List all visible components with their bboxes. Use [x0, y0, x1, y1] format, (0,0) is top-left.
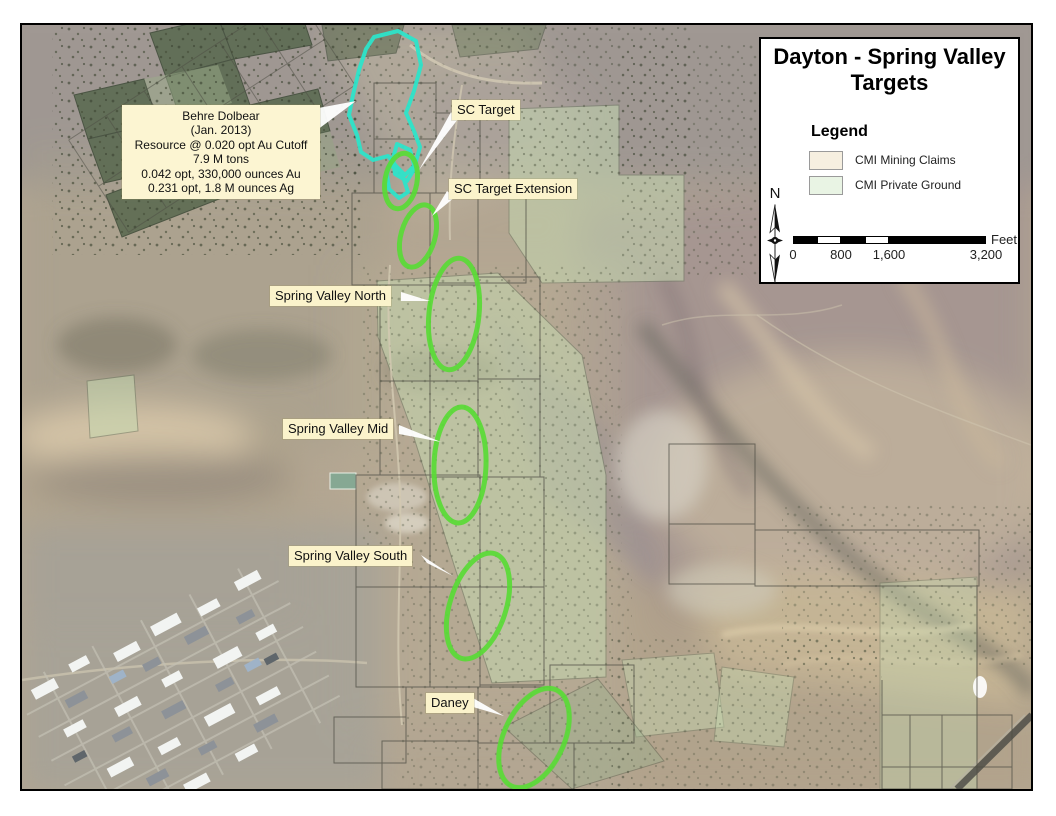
legend-swatch-mining-claims — [809, 151, 843, 170]
legend-heading: Legend — [811, 123, 868, 141]
scale-tick-3200: 3,200 — [970, 247, 1003, 262]
white-patch — [973, 676, 987, 698]
scale-bar: 0 800 1,600 3,200 Feet — [793, 236, 993, 268]
scale-segment — [889, 236, 986, 244]
annotation-line: 0.042 opt, 330,000 ounces Au — [124, 167, 318, 181]
page: { "map": { "panel": { "title": "Dayton -… — [0, 0, 1056, 816]
label-sc-target-extension: SC Target Extension — [449, 179, 577, 199]
annotation-line: 7.9 M tons — [124, 152, 318, 166]
scale-segment — [841, 236, 865, 244]
label-spring-valley-south: Spring Valley South — [289, 546, 412, 566]
north-arrow-icon — [764, 202, 786, 285]
annotation-line: Behre Dolbear — [124, 109, 318, 123]
legend-label-private-ground: CMI Private Ground — [855, 178, 961, 192]
label-daney: Daney — [426, 693, 474, 713]
scale-unit-label: Feet — [991, 232, 1017, 247]
label-sc-target: SC Target — [452, 100, 520, 120]
map-title: Dayton - Spring Valley Targets — [761, 44, 1018, 96]
label-spring-valley-mid: Spring Valley Mid — [283, 419, 393, 439]
scale-segment — [865, 236, 889, 244]
scale-tick-800: 800 — [830, 247, 852, 262]
annotation-line: Resource @ 0.020 opt Au Cutoff — [124, 138, 318, 152]
map-canvas: Behre Dolbear (Jan. 2013) Resource @ 0.0… — [20, 23, 1033, 791]
scale-tick-0: 0 — [789, 247, 796, 262]
north-label: N — [764, 185, 786, 202]
scale-tick-1600: 1,600 — [873, 247, 906, 262]
resource-annotation-box: Behre Dolbear (Jan. 2013) Resource @ 0.0… — [122, 105, 320, 199]
scale-segment — [817, 236, 841, 244]
scale-segment — [793, 236, 817, 244]
title-legend-panel: Dayton - Spring Valley Targets Legend CM… — [759, 37, 1020, 284]
legend-swatch-private-ground — [809, 176, 843, 195]
label-spring-valley-north: Spring Valley North — [270, 286, 391, 306]
legend-label-mining-claims: CMI Mining Claims — [855, 153, 956, 167]
annotation-line: (Jan. 2013) — [124, 123, 318, 137]
pond — [330, 473, 356, 489]
annotation-line: 0.231 opt, 1.8 M ounces Ag — [124, 181, 318, 195]
